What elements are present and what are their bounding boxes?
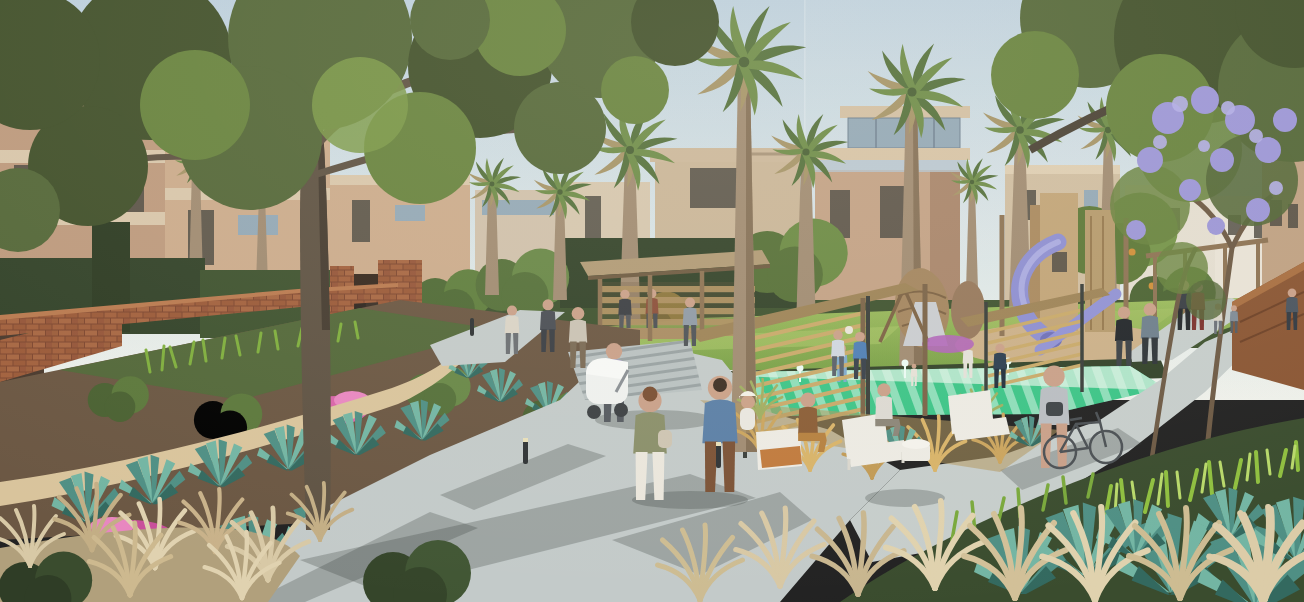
scene-canvas: [0, 0, 1304, 602]
light-grade: [0, 0, 1304, 602]
park-rendering: [0, 0, 1304, 602]
